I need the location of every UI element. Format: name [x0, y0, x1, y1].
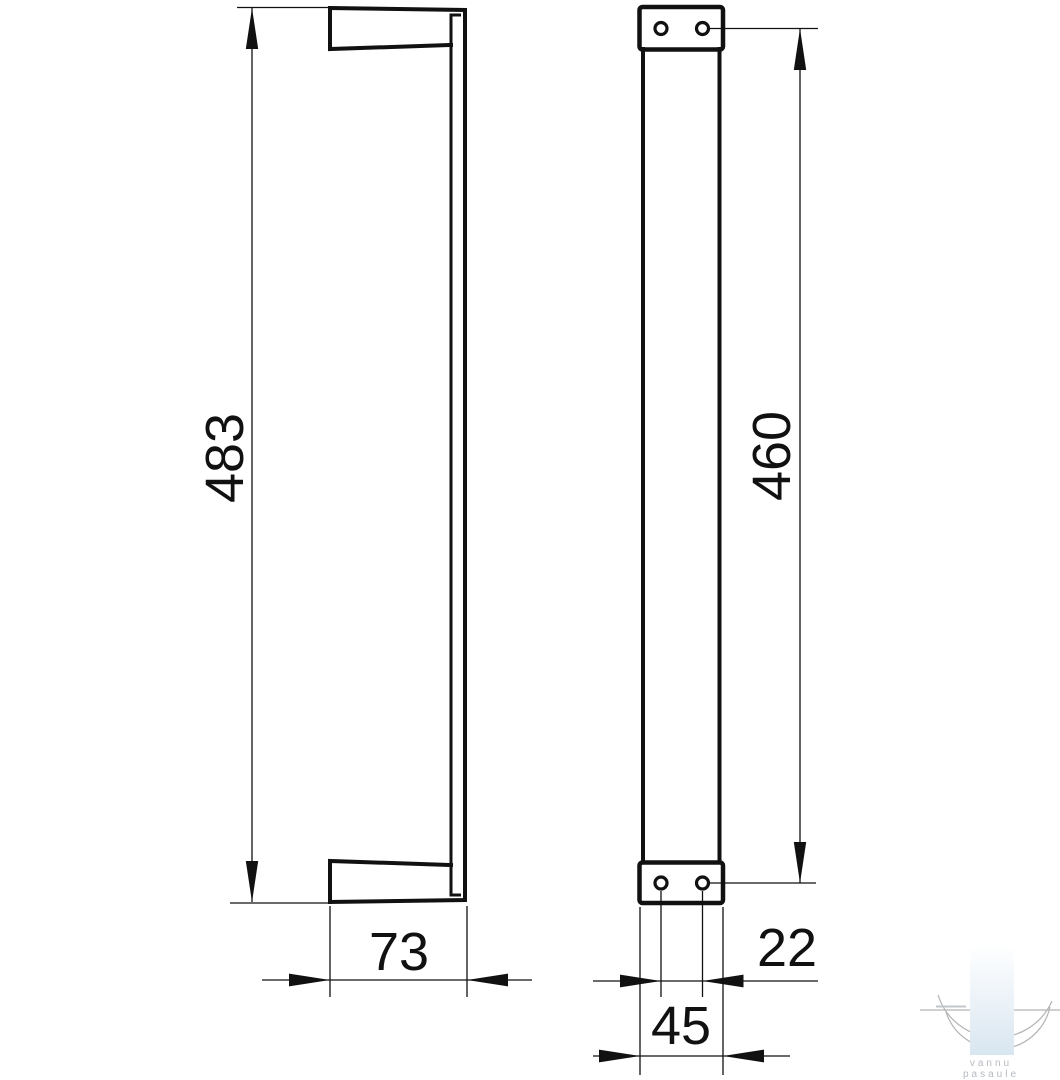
side-view-bar-outer-contour — [330, 8, 465, 902]
dim-span-value: 460 — [742, 411, 802, 501]
side-view-top-bracket — [330, 8, 451, 49]
side-view — [330, 8, 465, 902]
watermark-logo: vannu pasaule — [920, 948, 1060, 1080]
front-view-bottom-left-hole — [655, 877, 667, 889]
front-view-top-right-hole — [697, 23, 709, 35]
dimension-depth: 73 — [262, 906, 532, 997]
dim-span-arrow-down-icon — [794, 842, 806, 883]
dimension-hole-span: 460 — [710, 29, 818, 884]
dim-height-arrow-down-icon — [246, 861, 258, 902]
dim-width-arrow-left-icon — [723, 1050, 764, 1063]
dim-width-arrow-right-icon — [599, 1050, 640, 1063]
dimension-hole-pitch: 22 — [593, 891, 818, 997]
side-view-bar-inner-edge — [451, 15, 461, 895]
dimension-height: 483 — [195, 8, 330, 904]
front-view — [640, 7, 724, 903]
drawing-page: vannu pasaule — [0, 0, 1060, 1080]
dim-pitch-value: 22 — [757, 918, 817, 978]
dim-height-arrow-up-icon — [246, 8, 258, 49]
watermark-text-line2: pasaule — [963, 1069, 1019, 1080]
watermark-text-line1: vannu — [970, 1058, 1012, 1069]
dim-depth-arrow-left-icon — [467, 974, 508, 987]
dim-depth-arrow-right-icon — [289, 974, 330, 987]
dim-depth-value: 73 — [369, 922, 429, 982]
technical-drawing: vannu pasaule — [0, 0, 1060, 1080]
dim-width-value: 45 — [651, 996, 711, 1056]
watermark-accent-bar — [970, 948, 1014, 1055]
side-view-bottom-bracket — [330, 861, 451, 902]
front-view-bottom-right-hole — [697, 877, 709, 889]
dim-span-arrow-up-icon — [794, 29, 806, 71]
dim-height-value: 483 — [195, 413, 255, 503]
front-view-top-left-hole — [655, 23, 667, 35]
